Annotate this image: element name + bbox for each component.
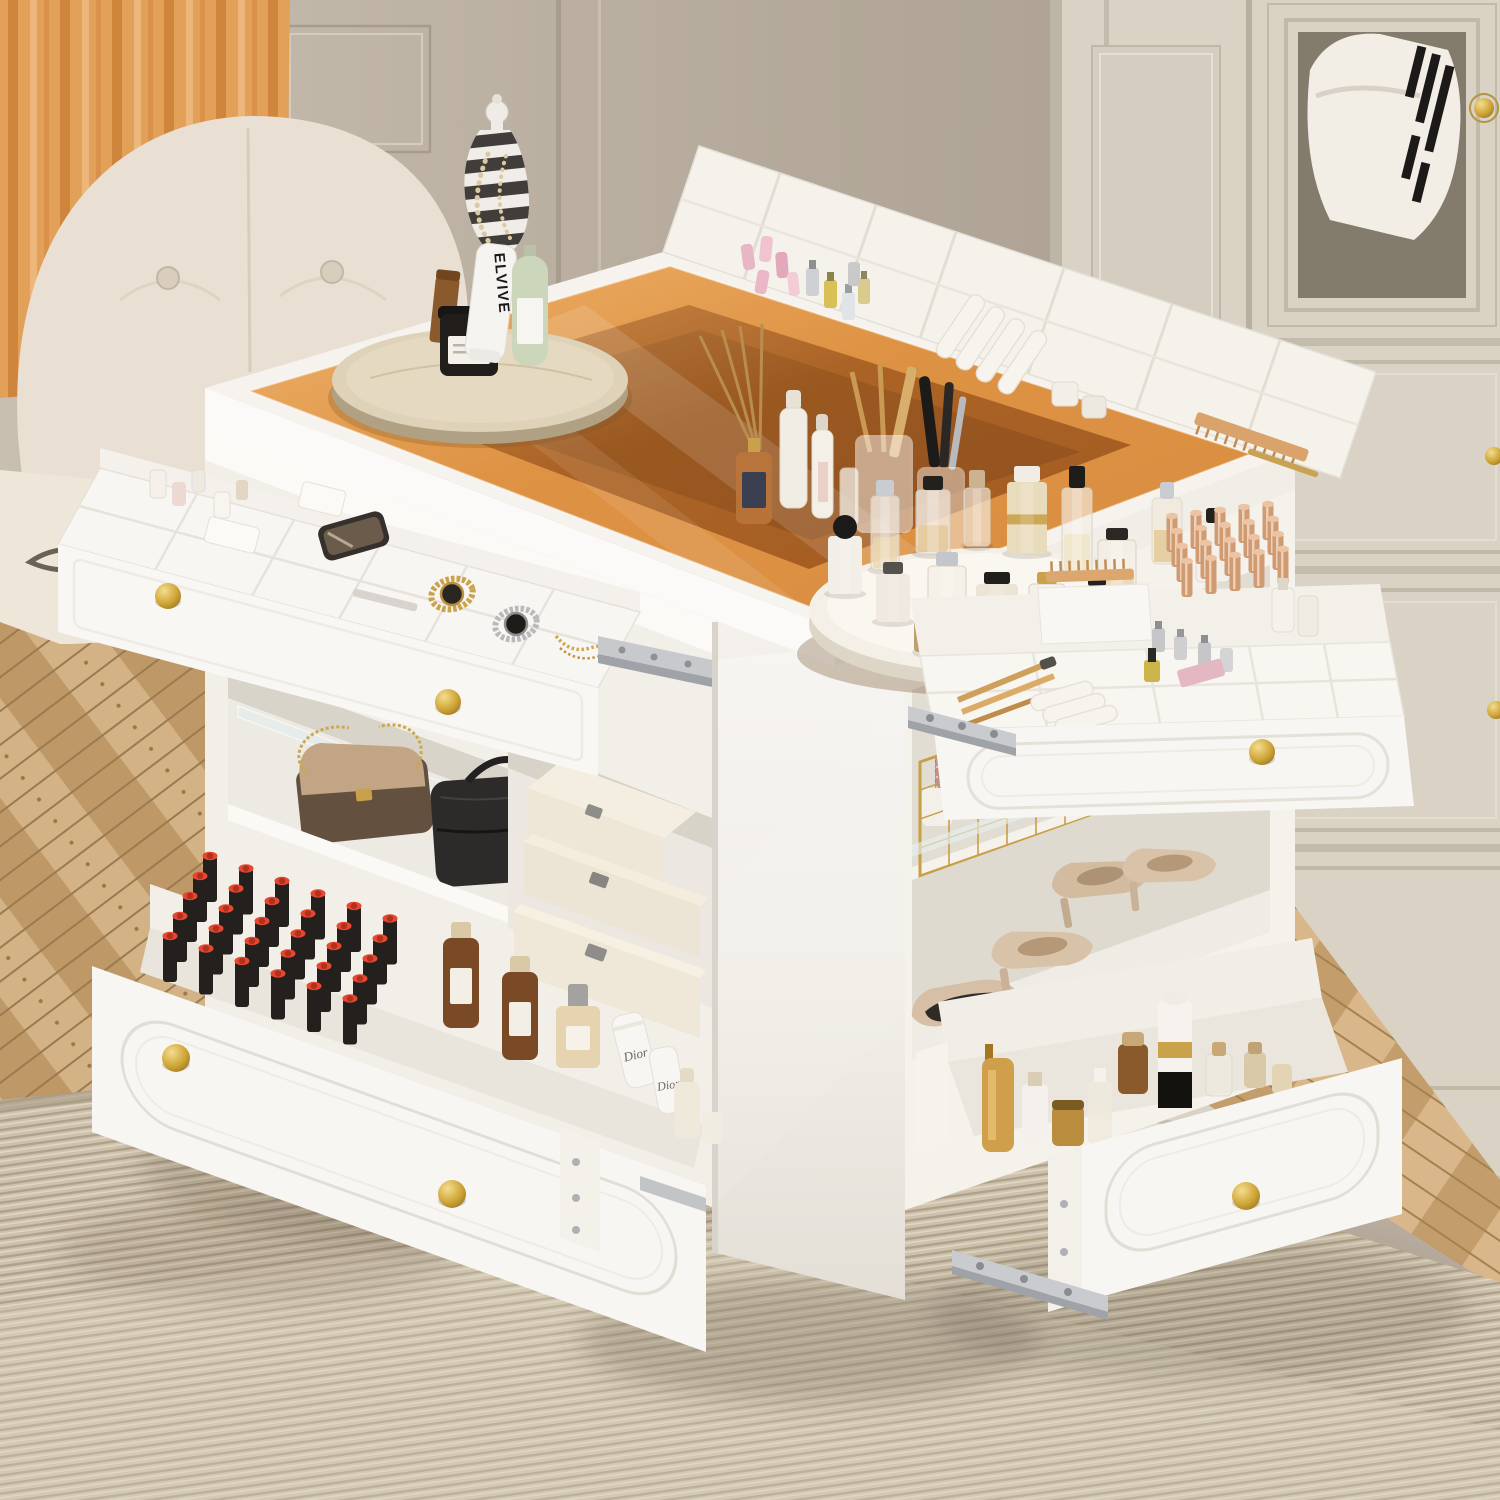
lipstick	[163, 932, 178, 982]
rose-gold-tube	[1229, 552, 1241, 591]
green-bottle	[512, 245, 548, 366]
wardrobe-knob	[1474, 98, 1494, 118]
lipstick	[235, 957, 250, 1007]
rose-gold-tube	[1253, 549, 1265, 588]
lipstick	[199, 944, 214, 994]
bag-clasp	[355, 788, 372, 802]
tall-gold-band-bottle	[1158, 991, 1192, 1108]
gold-knob	[162, 1044, 190, 1072]
gold-knob	[155, 583, 181, 609]
lipstick	[307, 982, 322, 1032]
gold-knob	[1232, 1182, 1260, 1210]
amber-cork-jar	[1118, 1044, 1148, 1094]
rose-gold-tube	[1181, 558, 1193, 597]
gold-jar	[1052, 1106, 1084, 1146]
gold-knob	[438, 1180, 466, 1208]
tuft-button	[321, 261, 343, 283]
lipstick	[343, 994, 358, 1044]
gold-knob	[435, 689, 461, 715]
stored-white-bag	[1308, 34, 1461, 240]
gold-knob	[1249, 739, 1275, 765]
lipstick	[271, 969, 286, 1019]
room-photo: ELVIVE	[0, 0, 1500, 1500]
tuft-button	[157, 267, 179, 289]
center-column	[712, 602, 905, 1300]
wardrobe-glass-cabinet	[1268, 4, 1498, 326]
gold-pump-bottle	[982, 1058, 1014, 1152]
rose-gold-tube	[1205, 555, 1217, 594]
